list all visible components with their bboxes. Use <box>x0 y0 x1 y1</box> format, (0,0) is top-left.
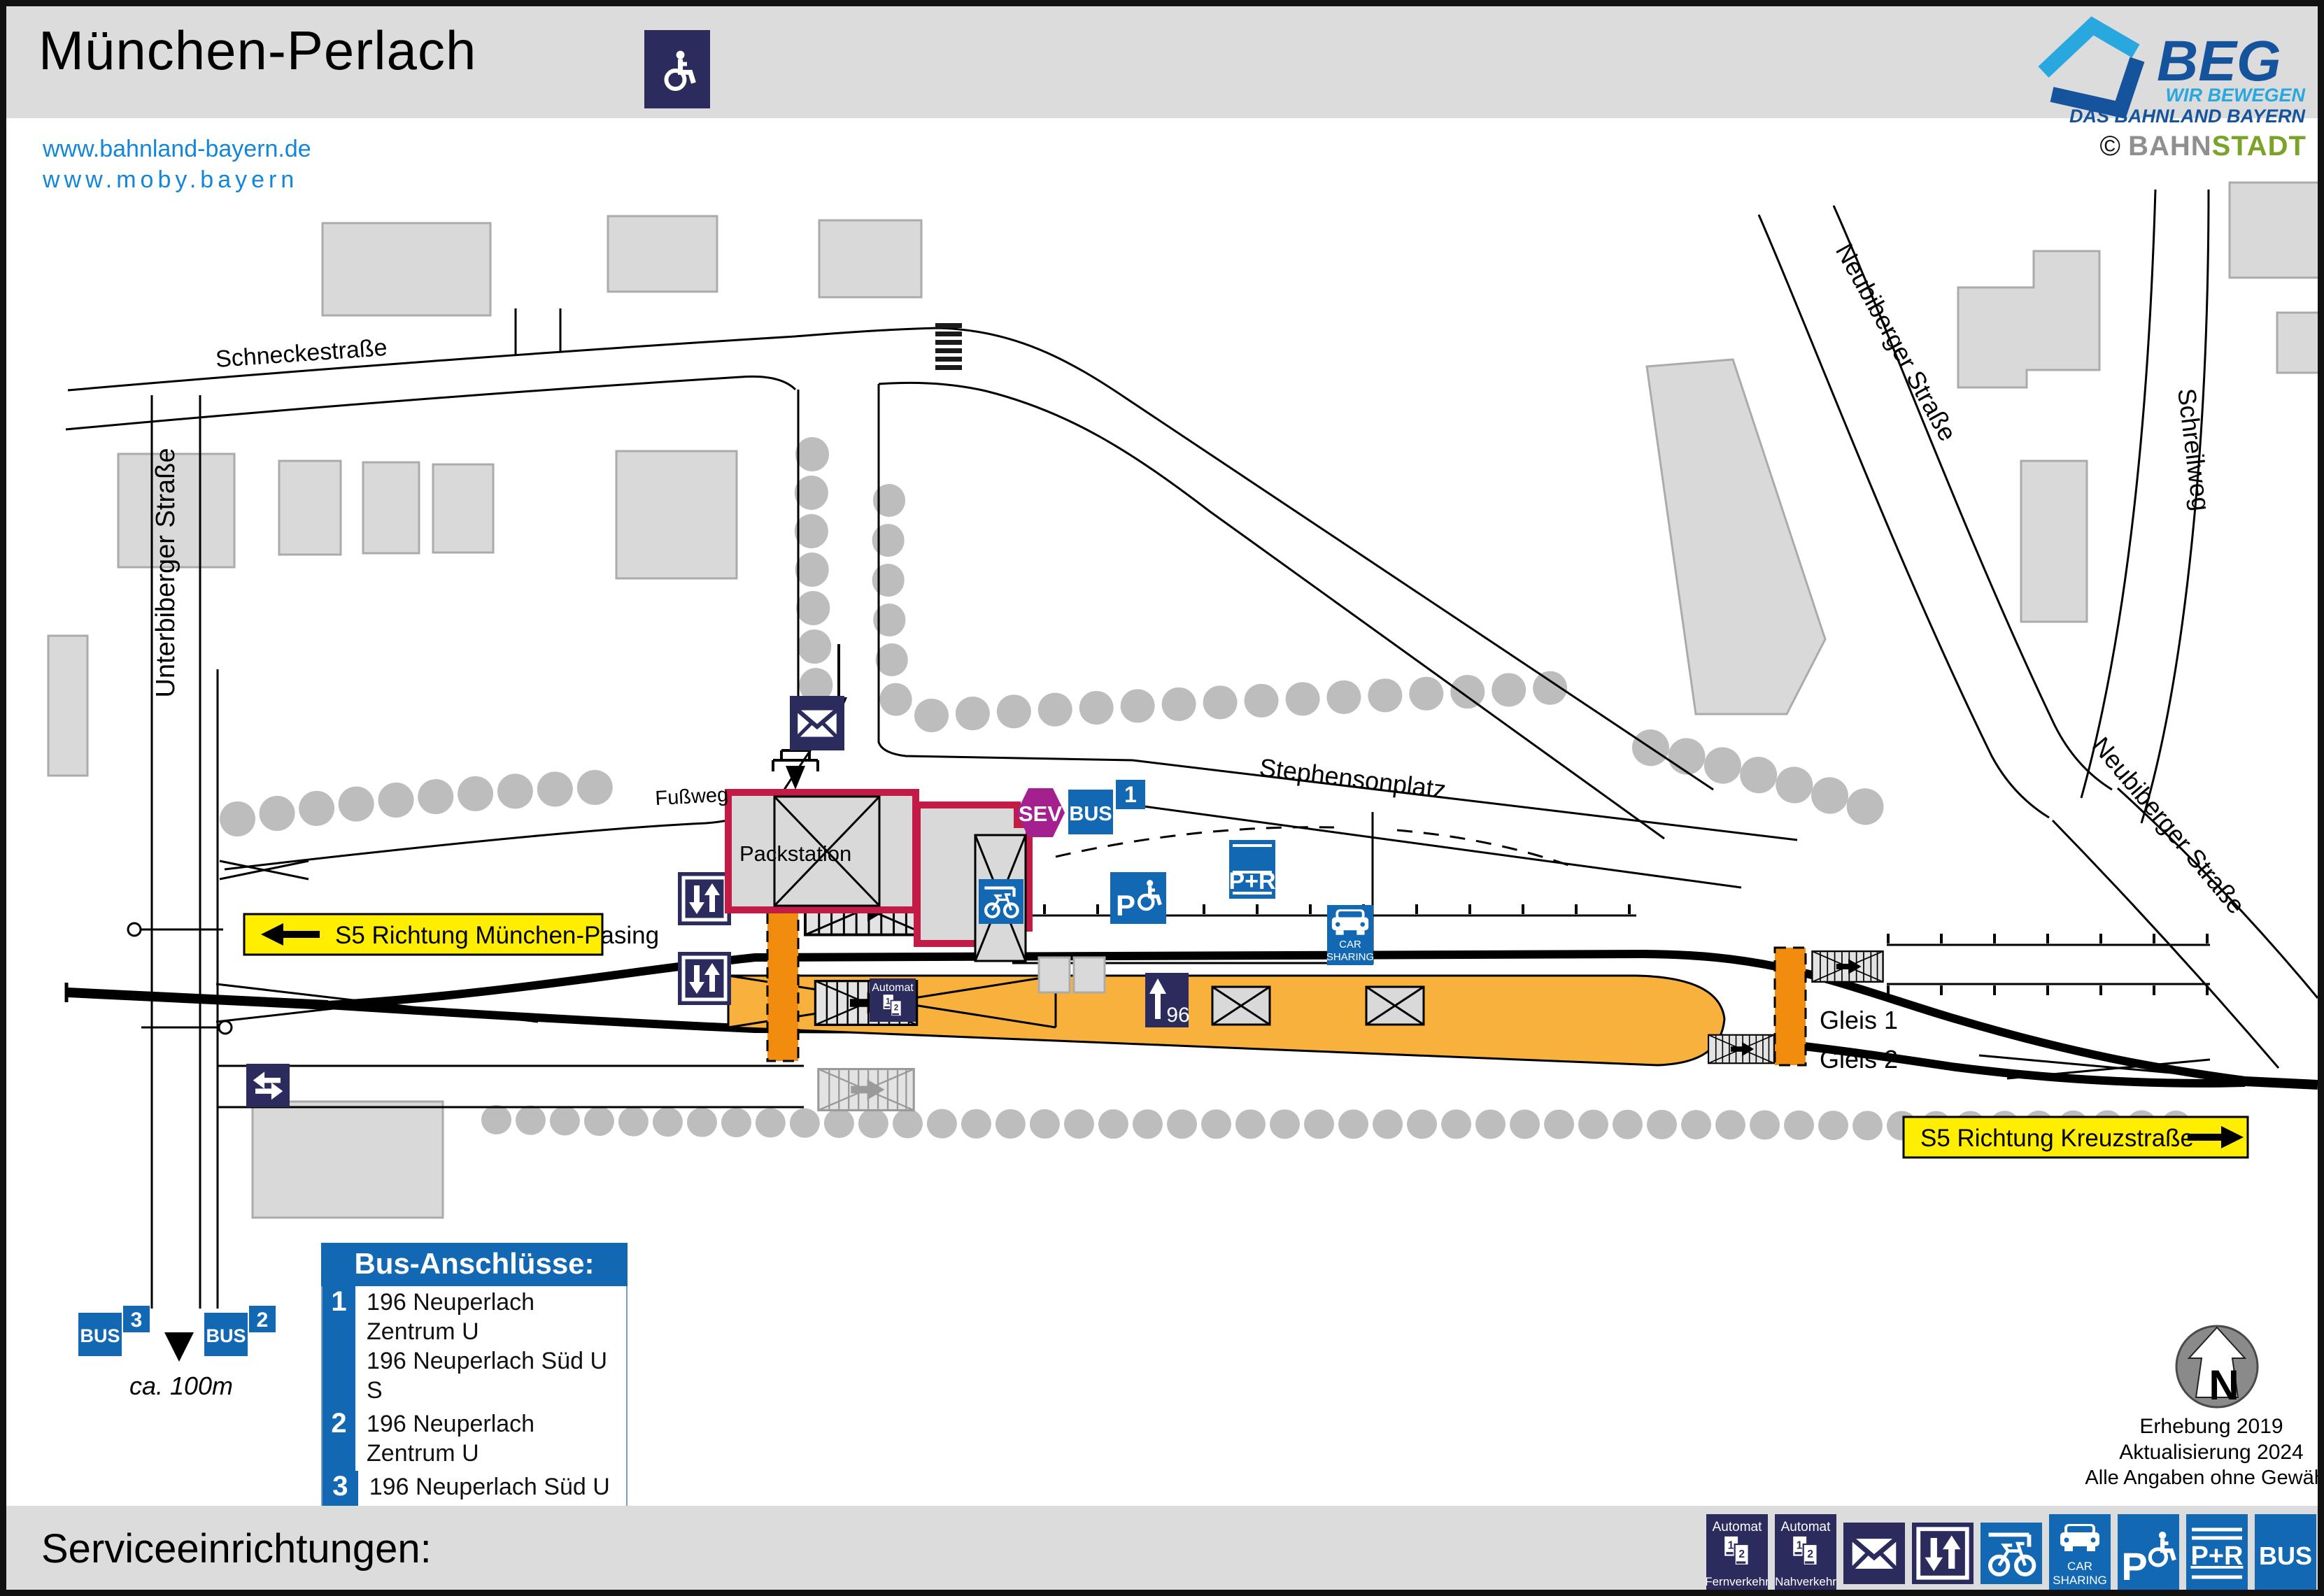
svg-text:BUS: BUS <box>80 1325 120 1346</box>
bus-connections-panel: Bus-Anschlüsse: 1 196 Neuperlach Zentrum… <box>321 1243 628 1535</box>
svg-text:Automat: Automat <box>1713 1520 1762 1534</box>
bus-connections-title: Bus-Anschlüsse: <box>321 1243 628 1286</box>
bus-connection-row: 1 196 Neuperlach Zentrum U 196 Neuperlac… <box>323 1286 626 1408</box>
direction-label-pasing: S5 Richtung München-Pasing <box>244 914 659 955</box>
station-map-page: 1 2 München-Perlach BEG WIR BEWEGEN DAS … <box>0 0 2324 1596</box>
svg-text:Erhebung 2019: Erhebung 2019 <box>2139 1415 2283 1438</box>
map-notes: Erhebung 2019 Aktualisierung 2024 Alle A… <box>2085 1415 2318 1489</box>
svg-text:CAR: CAR <box>2067 1560 2092 1573</box>
gleis-2-label: Gleis 2 <box>1820 1045 1898 1074</box>
svg-text:BUS: BUS <box>1069 803 1112 825</box>
bike-parking-icon <box>979 879 1023 924</box>
svg-text:P: P <box>2121 1544 2147 1588</box>
stop-number: 2 <box>323 1408 355 1471</box>
svg-text:Alle Angaben ohne Gewähr!: Alle Angaben ohne Gewähr! <box>2085 1467 2318 1489</box>
svg-text:Aktualisierung 2024: Aktualisierung 2024 <box>2119 1441 2304 1464</box>
svg-text:S5 Richtung München-Pasing: S5 Richtung München-Pasing <box>335 922 659 949</box>
svg-text:P: P <box>1116 889 1135 922</box>
distance-label: ca. 100m <box>129 1371 233 1400</box>
svg-text:BUS: BUS <box>206 1325 246 1346</box>
stop-number: 1 <box>323 1286 355 1408</box>
svg-text:P+R: P+R <box>2191 1541 2244 1571</box>
north-arrow: N <box>2176 1326 2258 1409</box>
mailbox-icon <box>790 696 844 750</box>
car-sharing-icon: CAR SHARING <box>2049 1514 2111 1593</box>
gleis-1-label: Gleis 1 <box>1820 1006 1898 1034</box>
accessible-parking-icon: P <box>2118 1514 2179 1593</box>
elevator-icon-platform <box>678 952 731 1005</box>
underpass-direction-icon <box>246 1064 290 1107</box>
ticket-machine-long-distance-icon: Automat Fernverkehr <box>1706 1514 1768 1593</box>
svg-text:P+R: P+R <box>1228 868 1275 895</box>
svg-text:Fußweg: Fußweg <box>655 784 729 810</box>
svg-text:S5 Richtung Kreuzstraße: S5 Richtung Kreuzstraße <box>1920 1125 2194 1152</box>
service-facilities-label: Serviceeinrichtungen: <box>41 1525 432 1572</box>
svg-text:Automat: Automat <box>1781 1520 1831 1534</box>
svg-text:Automat: Automat <box>872 982 914 994</box>
platform-line-196-sign: 96 <box>1145 973 1190 1027</box>
stairs-east-platform <box>1708 1035 1774 1064</box>
service-icon-row: Automat Fernverkehr Automat Nahverkehr C… <box>1706 1514 2316 1593</box>
stairs-south <box>819 1069 914 1111</box>
svg-text:Fernverkehr: Fernverkehr <box>1706 1575 1768 1588</box>
bus-stop-1-badge: BUS 1 <box>1068 780 1145 834</box>
direction-label-kreuzstrasse: S5 Richtung Kreuzstraße <box>1904 1117 2248 1157</box>
mailbox-icon <box>1843 1514 1905 1593</box>
bus-line: 196 Neuperlach Zentrum U <box>367 1288 626 1346</box>
svg-text:Neubiberger Straße: Neubiberger Straße <box>2087 732 2251 920</box>
stairs-east-north <box>1812 951 1883 982</box>
svg-text:N: N <box>2209 1362 2239 1409</box>
svg-text:96: 96 <box>1166 1004 1189 1027</box>
svg-text:3: 3 <box>131 1309 143 1332</box>
park-and-ride-icon: P+R <box>1228 840 1275 899</box>
svg-text:SHARING: SHARING <box>2053 1574 2106 1587</box>
bus-stop-2-badge: BUS 2 <box>204 1306 276 1356</box>
bike-parking-icon <box>1981 1514 2042 1593</box>
parking-stall <box>1074 957 1105 992</box>
distance-arrow <box>164 1332 194 1362</box>
car-sharing-icon: CAR SHARING <box>1326 905 1374 965</box>
svg-text:Neubiberger Straße: Neubiberger Straße <box>1830 238 1962 446</box>
svg-text:Schreilweg: Schreilweg <box>2172 387 2216 513</box>
svg-text:BUS: BUS <box>2259 1541 2312 1570</box>
svg-text:Nahverkehr: Nahverkehr <box>1775 1575 1836 1588</box>
accessible-parking-icon: P <box>1110 872 1166 924</box>
bus-icon: BUS <box>2255 1514 2316 1593</box>
bus-connection-row: 2 196 Neuperlach Zentrum U <box>323 1408 626 1471</box>
street-labels: Schneckestraße Unterbiberger Straße Neub… <box>151 238 2251 919</box>
svg-text:CAR: CAR <box>1339 939 1361 950</box>
bus-stop-3-badge: BUS 3 <box>78 1306 150 1356</box>
elevator-icon <box>1912 1514 1974 1593</box>
parking-stall <box>1039 957 1070 992</box>
svg-text:2: 2 <box>257 1309 269 1332</box>
svg-text:Stephensonplatz: Stephensonplatz <box>1258 753 1447 804</box>
packstation-entrance-arrow <box>786 766 805 790</box>
bike-shelter <box>975 835 1026 961</box>
bus-line: 196 Neuperlach Süd U S <box>367 1346 626 1405</box>
elevator-icon-north <box>678 872 731 925</box>
bus-line: 196 Neuperlach Zentrum U <box>367 1409 626 1468</box>
ticket-machine-local-icon: Automat Nahverkehr <box>1775 1514 1836 1593</box>
east-access-ramp <box>1775 948 1806 1065</box>
svg-text:1: 1 <box>1124 782 1137 807</box>
packstation-label: Packstation <box>739 841 851 866</box>
svg-text:Unterbiberger Straße: Unterbiberger Straße <box>151 448 180 698</box>
park-and-ride-icon: P+R <box>2186 1514 2248 1593</box>
platform-ticket-machine-icon: Automat <box>870 978 916 1022</box>
svg-text:SEV: SEV <box>1019 801 1062 826</box>
svg-text:SHARING: SHARING <box>1326 951 1374 963</box>
